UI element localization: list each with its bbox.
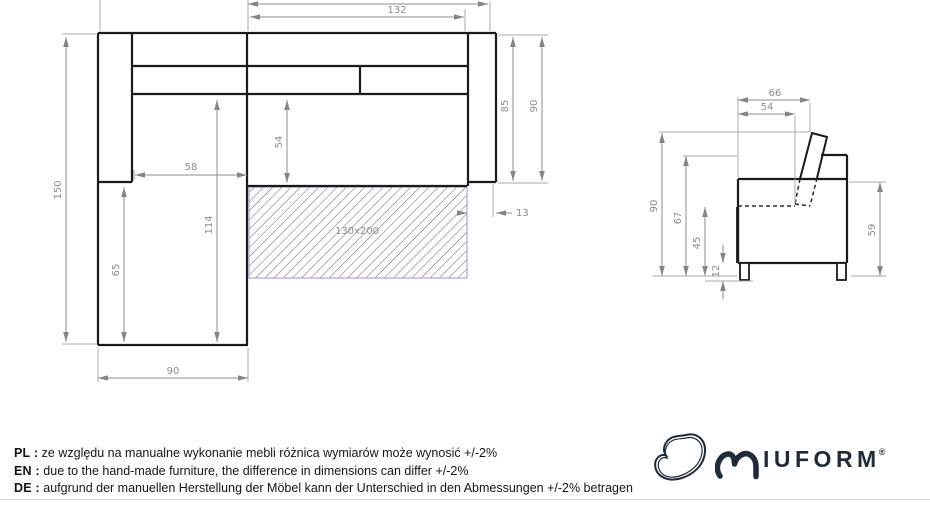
backrest-cushion-hidden <box>738 178 817 206</box>
bottom-divider <box>0 499 930 500</box>
logo-wordmark: IUFORM <box>763 448 881 471</box>
dim-label-total-depth: 150 <box>53 180 64 199</box>
top-view: 132 150 90 58 114 65 54 85 90 13 130x200 <box>53 0 548 382</box>
logo-registered-mark: ® <box>879 447 886 457</box>
miuform-logo: IUFORM ® <box>651 428 927 490</box>
dim-label-back-height: 67 <box>673 212 684 225</box>
bed-area-label: 130x200 <box>335 226 379 237</box>
note-lang-pl: PL : <box>14 446 38 460</box>
side-view-outline <box>738 155 847 263</box>
note-text-pl: ze względu na manualne wykonanie mebli r… <box>42 446 497 460</box>
dim-label-backrest-depth: 54 <box>761 102 774 113</box>
note-row-de: DE : aufgrund der manuellen Herstellung … <box>14 481 633 495</box>
dim-label-armrest-height: 59 <box>867 224 878 237</box>
note-lang-de: DE : <box>14 481 40 495</box>
backrest-cushion-solid <box>800 133 827 179</box>
dim-label-chaise-width: 90 <box>167 366 180 377</box>
note-lang-en: EN : <box>14 464 40 478</box>
dim-label-chaise-front-length: 65 <box>111 264 122 277</box>
dim-label-armrest-outer: 90 <box>529 100 540 113</box>
dim-label-total-height: 90 <box>649 200 660 213</box>
logo-bean-icon <box>651 431 709 487</box>
logo-m-icon <box>715 446 761 480</box>
note-text-en: due to the hand-made furniture, the diff… <box>43 464 468 478</box>
dim-label-armrest-inner: 85 <box>500 100 511 113</box>
furniture-drawing: 132 150 90 58 114 65 54 85 90 13 130x200 <box>0 0 930 425</box>
sofa-leg-back <box>837 263 846 280</box>
dim-label-seat-height: 45 <box>692 237 703 250</box>
note-row-pl: PL : ze względu na manualne wykonanie me… <box>14 446 497 460</box>
dim-label-leg-height: 12 <box>711 265 722 278</box>
side-view-extension-lines <box>652 97 886 281</box>
sofa-leg-front <box>740 263 749 280</box>
note-row-en: EN : due to the hand-made furniture, the… <box>14 464 468 478</box>
dim-label-chaise-inner-width: 58 <box>185 162 198 173</box>
dim-label-top-depth: 66 <box>769 88 782 99</box>
dim-label-body-width: 132 <box>387 5 406 16</box>
dim-label-chaise-length: 114 <box>204 215 215 234</box>
dim-label-armrest-gap: 13 <box>516 208 529 219</box>
note-text-de: aufgrund der manuellen Herstellung der M… <box>43 481 633 495</box>
side-view: 66 54 90 67 45 12 59 <box>649 88 886 299</box>
technical-drawing-page: 132 150 90 58 114 65 54 85 90 13 130x200 <box>0 0 930 510</box>
dim-label-seat-depth: 54 <box>274 136 285 149</box>
